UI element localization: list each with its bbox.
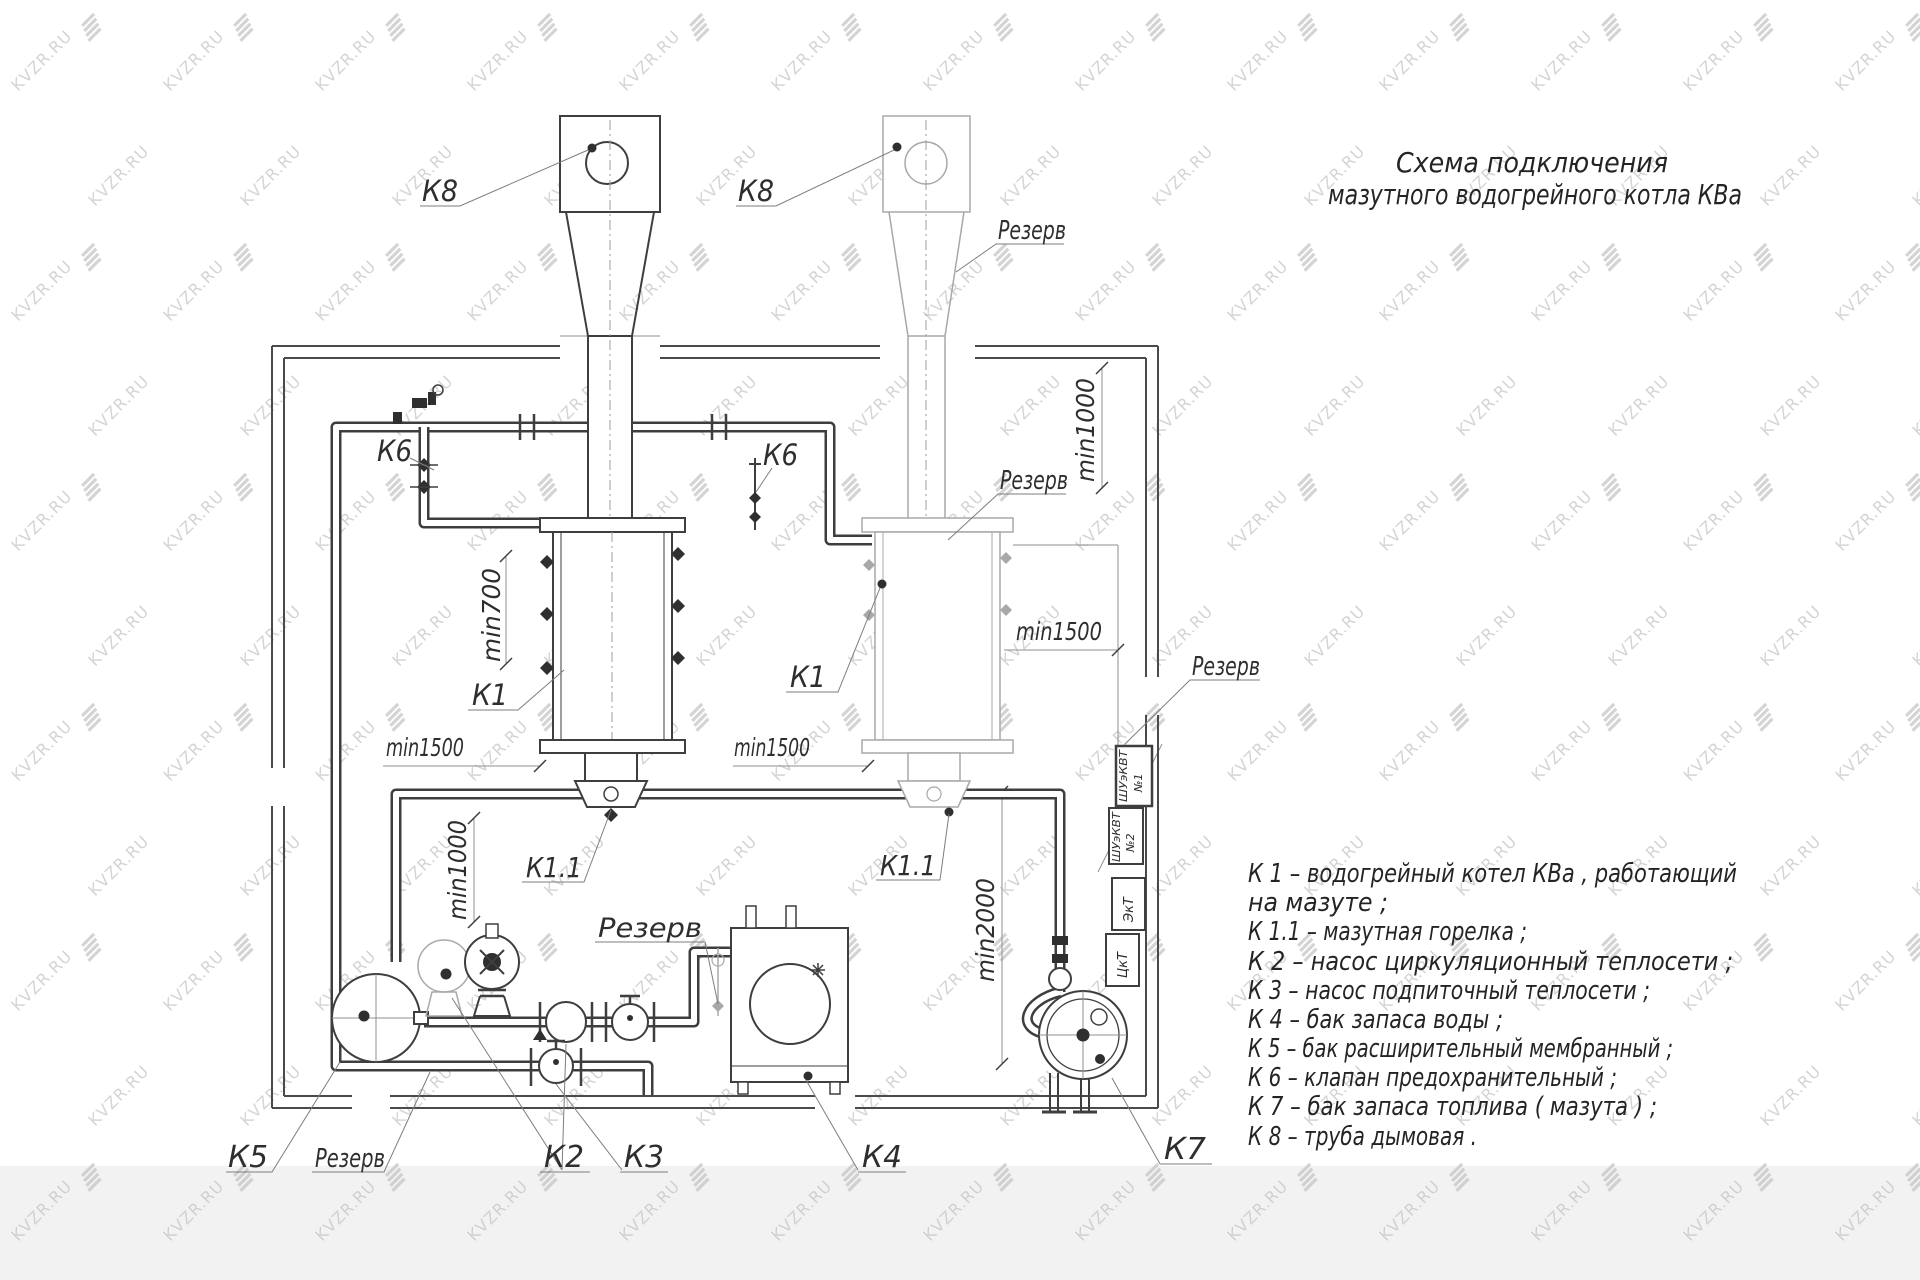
dim-min1500-center: min1500 (734, 733, 810, 762)
leader-dot (359, 1011, 370, 1022)
fan-icon (811, 963, 825, 977)
label-k11-left: К1.1 (526, 851, 582, 884)
dim-min1000-right: min1000 (1071, 378, 1100, 482)
label-k4: К4 (862, 1140, 902, 1175)
legend-line-k7: К 7 – бак запаса топлива ( мазута ) ; (1248, 1092, 1657, 1122)
legend-line-k6: К 6 – клапан предохранительный ; (1248, 1063, 1617, 1093)
leader-dot (878, 580, 887, 589)
label-reserve-top: Резерв (998, 216, 1066, 246)
tank-k4 (731, 906, 848, 1094)
title-line-2: мазутного водогрейного котла КВа (1328, 178, 1742, 211)
dim-min1500-left: min1500 (386, 733, 464, 762)
box-ekt-label: ЭкТ (1122, 896, 1137, 923)
legend-line-k8: К 8 – труба дымовая . (1248, 1122, 1477, 1152)
label-reserve-right: Резерв (1192, 652, 1260, 682)
dim-min1000-left: min1000 (443, 820, 472, 920)
cabinet-2-number: №2 (1124, 834, 1137, 853)
title-line-1: Схема подключения (1396, 146, 1668, 179)
label-reserve-bottom-left: Резерв (315, 1144, 385, 1174)
label-k7: К7 (1164, 1132, 1206, 1167)
legend-line-k3: К 3 – насос подпиточный теплосети ; (1248, 976, 1650, 1006)
legend-line-k5: К 5 – бак расширительный мембранный ; (1248, 1034, 1673, 1064)
label-k5: К5 (228, 1140, 268, 1175)
label-k6-right: К6 (763, 438, 798, 472)
label-k3: К3 (624, 1140, 664, 1175)
label-k11-right: К1.1 (880, 849, 936, 882)
label-k1-right: К1 (790, 660, 826, 694)
cabinet-1-label: ШУэКВТ (1117, 749, 1130, 802)
legend-line-k11: К 1.1 – мазутная горелка ; (1248, 917, 1527, 947)
legend-line-k4: К 4 – бак запаса воды ; (1248, 1005, 1503, 1035)
label-reserve-upper: Резерв (1000, 466, 1068, 496)
dim-min2000: min2000 (971, 878, 1000, 982)
legend-line-k1b: на мазуте ; (1248, 888, 1388, 918)
label-k2: К2 (544, 1140, 584, 1175)
cabinet-1-number: №1 (1132, 774, 1145, 793)
dim-min1500-right: min1500 (1016, 617, 1102, 646)
legend-line-k2: К 2 – насос циркуляционный теплосети ; (1248, 947, 1733, 977)
leader-dot (588, 144, 597, 153)
label-k1-left: К1 (472, 678, 508, 712)
leader-dot (441, 969, 452, 980)
drawing-sheet: KVZR.RU (0, 0, 1920, 1280)
cabinet-2-label: ШУэКВТ (1110, 811, 1123, 862)
label-k6-left: К6 (377, 434, 412, 468)
label-k8-left: К8 (422, 174, 458, 208)
boiler-connection-diagram: KVZR.RU (0, 0, 1920, 1280)
label-reserve-center: Резерв (598, 913, 702, 944)
box-ckt-label: ЦкТ (1116, 951, 1131, 978)
dim-min700: min700 (477, 568, 506, 662)
label-k8-right: К8 (738, 174, 774, 208)
legend-line-k1: К 1 – водогрейный котел КВа , работающий (1248, 859, 1737, 889)
leader-dot (804, 1072, 813, 1081)
